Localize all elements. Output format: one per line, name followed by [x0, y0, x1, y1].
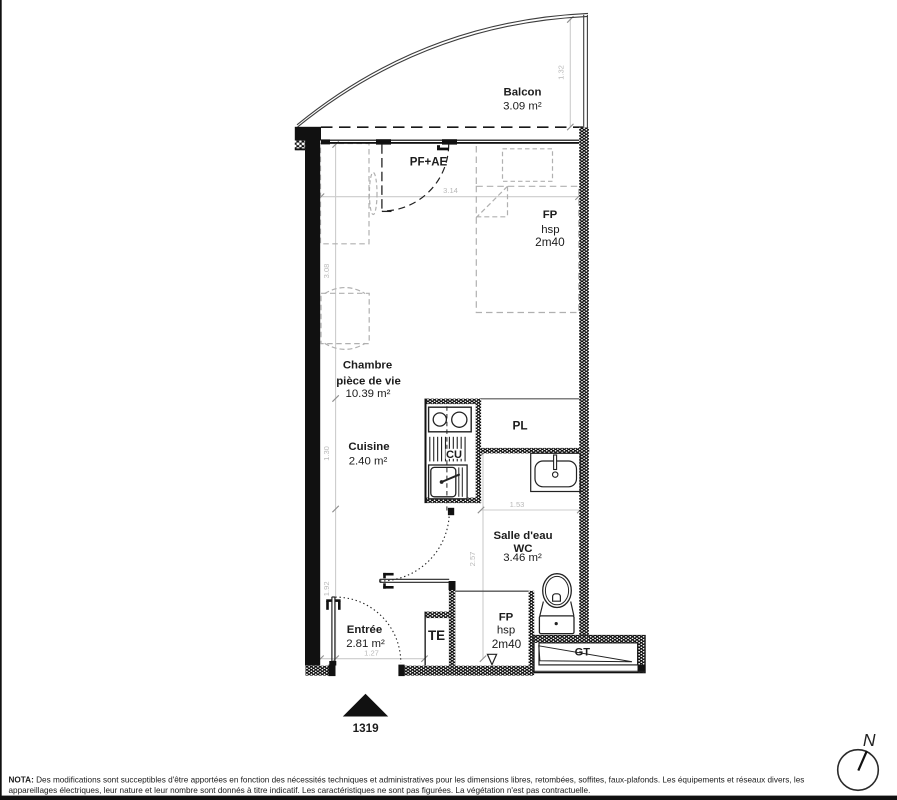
svg-text:3.09 m²: 3.09 m²: [503, 100, 542, 112]
svg-text:2.40 m²: 2.40 m²: [349, 455, 388, 467]
svg-text:PF+AE: PF+AE: [410, 157, 448, 169]
svg-text:2.57: 2.57: [468, 552, 477, 567]
svg-text:TE: TE: [428, 628, 445, 643]
svg-text:Balcon: Balcon: [504, 87, 542, 99]
svg-text:Chambre: Chambre: [343, 360, 392, 372]
svg-text:3.08: 3.08: [322, 264, 331, 279]
svg-text:pièce de vie: pièce de vie: [336, 376, 401, 388]
svg-text:FP: FP: [499, 612, 514, 624]
svg-text:1.32: 1.32: [557, 65, 566, 80]
svg-text:2m40: 2m40: [492, 637, 522, 651]
svg-text:10.39 m²: 10.39 m²: [346, 388, 391, 400]
svg-text:FP: FP: [543, 209, 558, 221]
svg-text:Salle d'eau: Salle d'eau: [493, 530, 552, 542]
svg-text:1.53: 1.53: [510, 500, 525, 509]
svg-text:NOTA: Des modifications sont s: NOTA: Des modifications sont succeptible…: [9, 775, 805, 784]
svg-text:GT: GT: [575, 646, 591, 658]
svg-text:2m40: 2m40: [535, 235, 565, 249]
svg-text:N: N: [863, 730, 876, 750]
svg-text:Cuisine: Cuisine: [348, 441, 389, 453]
svg-text:3.14: 3.14: [443, 186, 458, 195]
svg-text:2.81 m²: 2.81 m²: [346, 638, 385, 650]
svg-text:1.30: 1.30: [322, 446, 331, 461]
svg-text:Entrée: Entrée: [347, 624, 382, 636]
svg-text:PL: PL: [512, 418, 527, 432]
svg-text:1.92: 1.92: [322, 581, 331, 596]
svg-text:1319: 1319: [353, 722, 380, 735]
svg-text:3.46 m²: 3.46 m²: [503, 552, 542, 564]
svg-text:appareillages électriques, leu: appareillages électriques, leur nature e…: [9, 786, 591, 795]
svg-text:hsp: hsp: [497, 625, 515, 637]
svg-text:CU: CU: [446, 449, 462, 461]
